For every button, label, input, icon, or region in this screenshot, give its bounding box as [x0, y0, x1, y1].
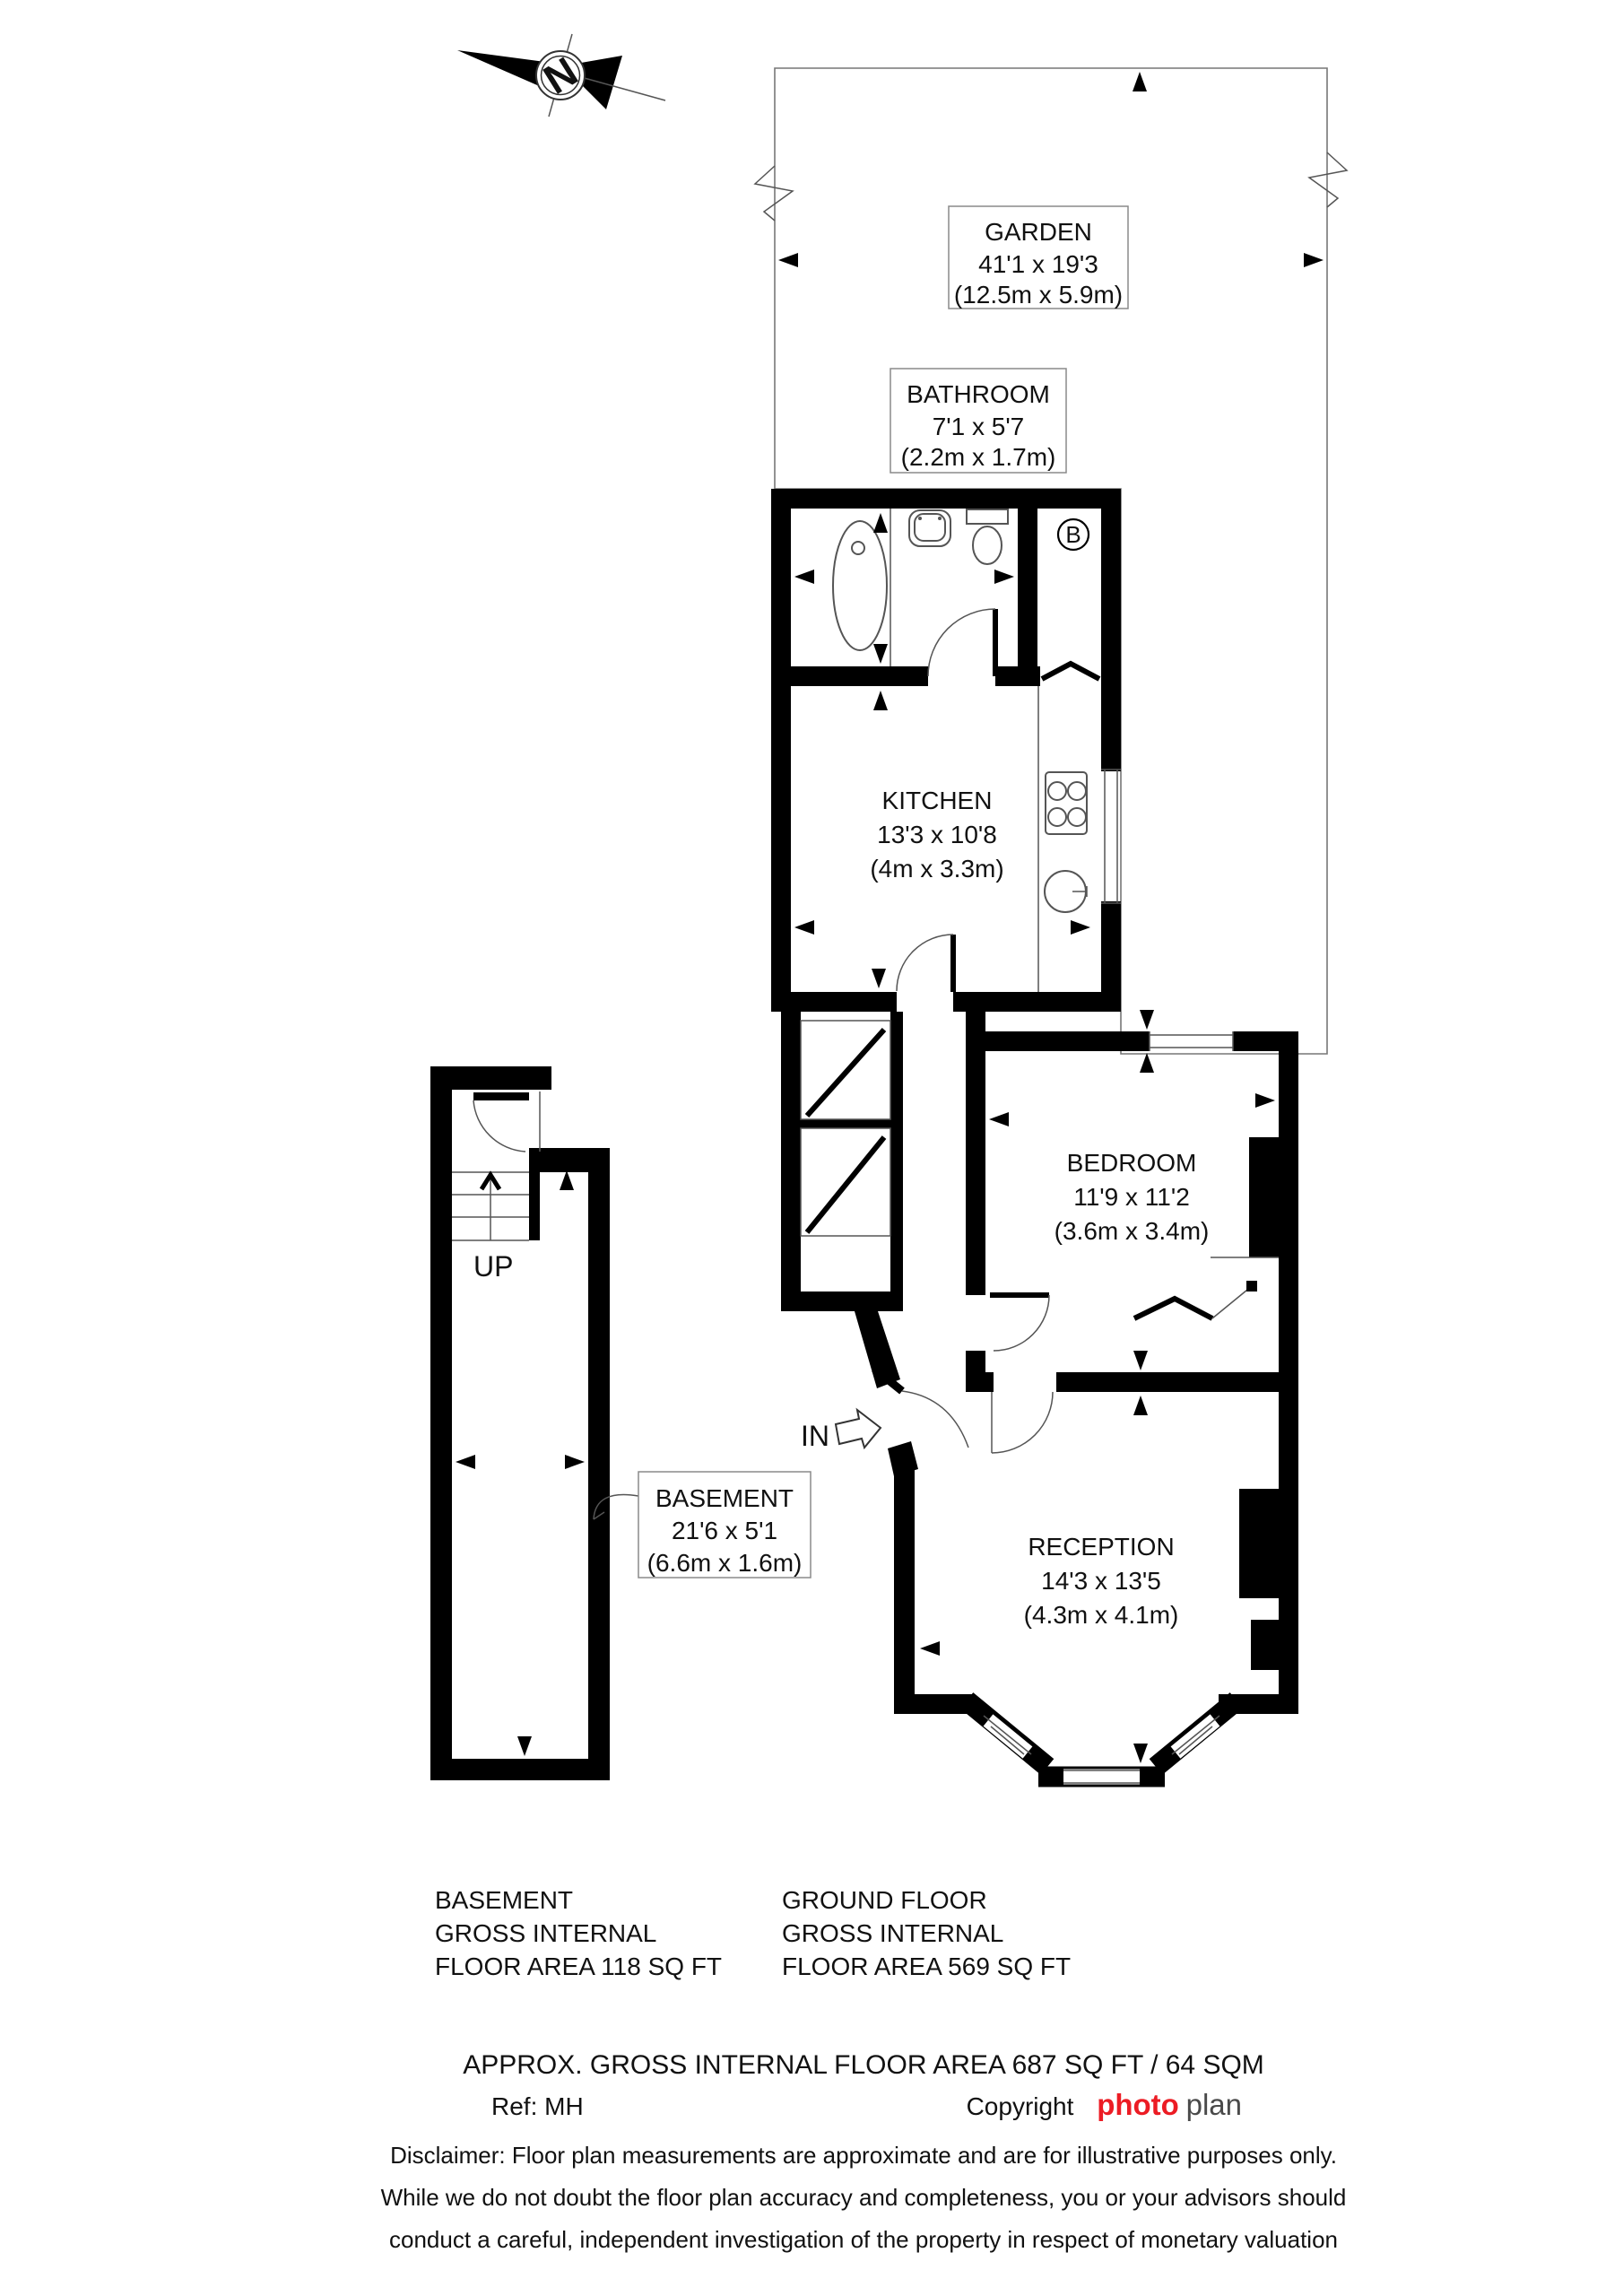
room-basement: UP BASEMENT 21'6 x 5'1 (6.6m x 1.6m)	[430, 1066, 811, 1780]
room-label: BASEMENT	[655, 1484, 794, 1512]
bay-window	[967, 1700, 1237, 1783]
reference-label: Ref: MH	[491, 2092, 584, 2120]
ground-floor-area-line: FLOOR AREA 569 SQ FT	[782, 1952, 1071, 1980]
washbasin	[909, 510, 950, 546]
toilet	[967, 509, 1008, 564]
room-size-metric: (12.5m x 5.9m)	[954, 281, 1123, 309]
stairs-up-label: UP	[473, 1250, 513, 1283]
hall-closet	[801, 1128, 890, 1236]
dimension-arrow	[560, 1170, 574, 1190]
room-label: GARDEN	[985, 218, 1092, 246]
dimension-arrow	[794, 920, 814, 935]
boiler-symbol: B	[1058, 519, 1089, 550]
dimension-arrow	[1255, 1093, 1275, 1108]
north-compass-icon: N	[457, 34, 665, 117]
dimension-arrow	[873, 513, 888, 533]
disclaimer-line: Disclaimer: Floor plan measurements are …	[390, 2142, 1337, 2169]
garden-break-right	[1309, 152, 1347, 207]
room-size-metric: (6.6m x 1.6m)	[647, 1549, 803, 1577]
room-size-imperial: 11'9 x 11'2	[1073, 1183, 1190, 1211]
basement-area-line: GROSS INTERNAL	[435, 1919, 656, 1947]
room-label: BEDROOM	[1067, 1149, 1197, 1177]
ground-floor-area-line: GROUND FLOOR	[782, 1886, 987, 1914]
area-summary: BASEMENT GROSS INTERNAL FLOOR AREA 118 S…	[435, 1886, 1264, 2080]
room-size-metric: (2.2m x 1.7m)	[901, 443, 1056, 471]
kitchen-sink	[1045, 871, 1087, 912]
dimension-arrow	[1133, 72, 1147, 91]
dimension-arrow	[778, 253, 798, 267]
hallway	[781, 1012, 985, 1476]
dimension-arrow	[1071, 920, 1090, 935]
copyright-line: Copyright photo plan	[967, 2088, 1242, 2121]
bedroom-window	[1150, 1031, 1233, 1051]
chimney-breast	[1239, 1489, 1279, 1598]
bedroom-closet	[1134, 1257, 1279, 1318]
dimension-arrow	[1133, 1351, 1148, 1370]
dimension-arrow	[989, 1112, 1009, 1126]
front-door	[874, 1369, 968, 1448]
dimension-arrow	[1133, 1396, 1148, 1415]
copyright-label: Copyright	[967, 2092, 1074, 2120]
dimension-arrow	[873, 644, 888, 664]
boiler-label: B	[1065, 521, 1081, 548]
total-area-line: APPROX. GROSS INTERNAL FLOOR AREA 687 SQ…	[463, 2050, 1264, 2080]
disclaimer-line: While we do not doubt the floor plan acc…	[381, 2184, 1347, 2211]
garden-break-left	[755, 166, 793, 221]
room-size-metric: (4.3m x 4.1m)	[1024, 1601, 1179, 1629]
disclaimer-line: conduct a careful, independent investiga…	[389, 2226, 1338, 2253]
room-label: BATHROOM	[907, 380, 1050, 408]
basement-area-line: BASEMENT	[435, 1886, 573, 1914]
dimension-arrow	[565, 1455, 585, 1469]
room-reception: RECEPTION 14'3 x 13'5 (4.3m x 4.1m)	[894, 1392, 1298, 1783]
footer: Ref: MH Copyright photo plan Disclaimer:…	[381, 2088, 1347, 2253]
kitchen-window	[1101, 770, 1121, 903]
hall-closet	[801, 1021, 890, 1119]
dimension-arrow	[1140, 1010, 1154, 1030]
bathtub	[833, 521, 887, 650]
room-size-imperial: 41'1 x 19'3	[978, 250, 1098, 278]
entrance-arrow-icon	[836, 1410, 881, 1448]
basement-area-line: FLOOR AREA 118 SQ FT	[435, 1952, 722, 1980]
bathtub-drain	[852, 542, 864, 554]
dimension-arrow	[1304, 253, 1324, 267]
ground-floor-area-line: GROSS INTERNAL	[782, 1919, 1003, 1947]
dimension-arrow	[1133, 1744, 1148, 1763]
brand-plan: plan	[1186, 2088, 1242, 2121]
kitchen-door	[897, 935, 953, 992]
floorplan-page: GARDEN 41'1 x 19'3 (12.5m x 5.9m) N	[0, 0, 1623, 2296]
dimension-arrow	[920, 1641, 940, 1656]
dimension-arrow	[872, 969, 886, 988]
room-label: RECEPTION	[1028, 1533, 1174, 1561]
dimension-arrow	[994, 570, 1014, 584]
dimension-arrow	[873, 691, 888, 710]
room-size-metric: (4m x 3.3m)	[870, 855, 1003, 883]
floorplan-drawing: GARDEN 41'1 x 19'3 (12.5m x 5.9m) N	[0, 0, 1623, 2296]
dimension-arrow	[1140, 1053, 1154, 1073]
entrance-label: IN	[801, 1420, 829, 1452]
room-size-imperial: 7'1 x 5'7	[933, 413, 1025, 440]
chimney-breast	[1249, 1137, 1279, 1257]
reception-door	[992, 1392, 1053, 1453]
dimension-arrow	[794, 570, 814, 584]
brand-photo: photo	[1097, 2088, 1179, 2121]
hob	[1046, 772, 1087, 834]
entrance-marker: IN	[801, 1410, 881, 1452]
room-size-imperial: 13'3 x 10'8	[877, 821, 997, 848]
dimension-arrow	[456, 1455, 475, 1469]
basement-door	[473, 1091, 540, 1152]
compass-north-label: N	[535, 48, 586, 103]
room-label: KITCHEN	[882, 787, 993, 814]
room-size-imperial: 14'3 x 13'5	[1041, 1567, 1161, 1595]
house-upper-block: B BATHROOM 7'1 x 5'7 (2.2m x 1.7m) KITCH…	[771, 369, 1121, 1012]
bathroom-door	[928, 609, 995, 676]
room-size-imperial: 21'6 x 5'1	[672, 1517, 777, 1544]
room-size-metric: (3.6m x 3.4m)	[1055, 1217, 1210, 1245]
bedroom-door	[990, 1295, 1049, 1351]
boiler-room-door	[1042, 664, 1099, 679]
dimension-arrow	[517, 1736, 532, 1756]
stairs	[452, 1172, 529, 1240]
